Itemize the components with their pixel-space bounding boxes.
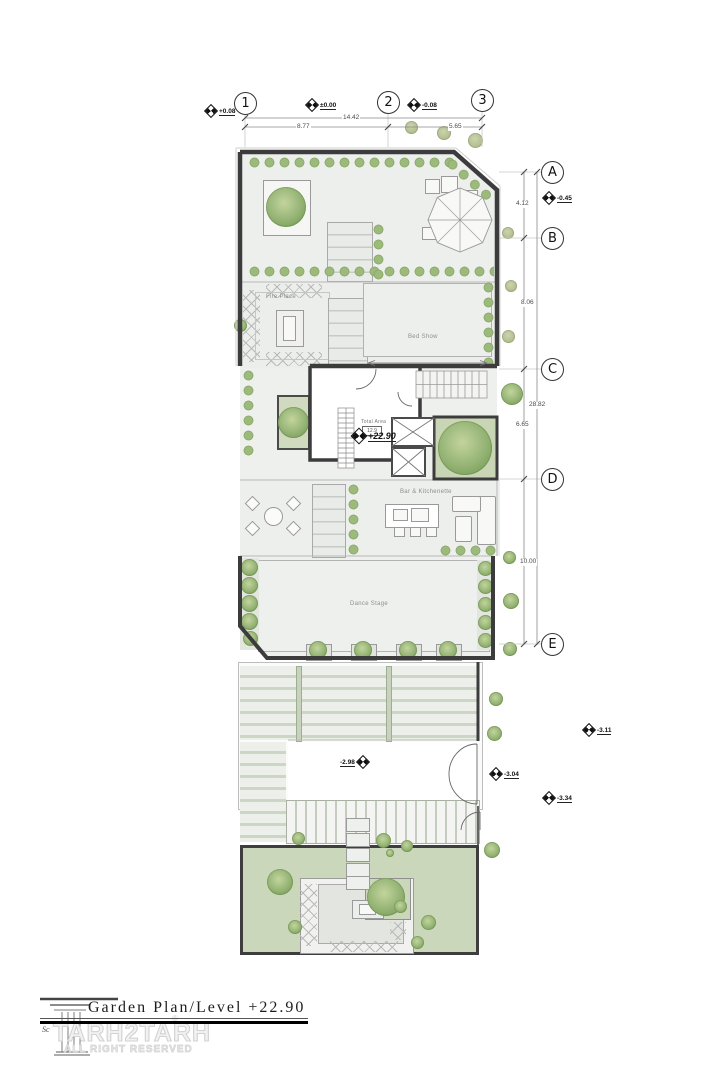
- dim-cd: 6.65: [515, 422, 530, 429]
- drawing-sheet: Fire Place Bed Show Total Area 12.9 +22.…: [0, 0, 711, 1080]
- bed-show-room: [363, 283, 492, 357]
- patio-paving-bottom: [330, 941, 398, 952]
- stool-icon: [410, 527, 421, 537]
- level-marker: -0.08: [408, 101, 437, 110]
- stool-icon: [394, 527, 405, 537]
- hedge-column-right: [481, 280, 496, 368]
- level-marker: -3.04: [490, 770, 519, 779]
- grid-bubble-E: E: [541, 633, 564, 656]
- stepping-stone: [346, 833, 370, 847]
- dim-de: 10.00: [519, 559, 537, 566]
- tree-icon: [501, 383, 523, 405]
- elevation-flag-icon: [352, 429, 366, 443]
- level-marker: ±0.00: [306, 101, 336, 110]
- stepping-stone: [346, 848, 370, 862]
- dim-top-left: 8.77: [296, 124, 311, 131]
- round-table: [264, 507, 283, 526]
- cooktop: [393, 509, 408, 521]
- elevation-flag-icon: [583, 724, 594, 735]
- tree-icon: [505, 280, 517, 292]
- pergola-slats: [299, 666, 386, 740]
- level-marker: -0.45: [543, 194, 572, 203]
- elevation-flag-icon: [543, 192, 554, 203]
- tree-icon: [267, 869, 293, 895]
- elevation-flag-icon: [490, 768, 501, 779]
- stool-icon: [426, 527, 437, 537]
- elevation-flag-icon: [408, 99, 419, 110]
- tree-icon: [266, 187, 306, 227]
- level-marker: -3.11: [583, 726, 611, 735]
- room-label-fireplace: Fire Place: [266, 294, 296, 300]
- level-marker-core: +22.90: [352, 431, 396, 442]
- dim-top-right: 5.65: [448, 124, 463, 131]
- mid-steps: [328, 298, 368, 368]
- grid-bubble-1: 1: [234, 92, 257, 115]
- shrub-icon: [354, 641, 372, 659]
- pergola-slats: [389, 666, 478, 740]
- sofa-section: [452, 496, 481, 512]
- tree-icon: [489, 692, 503, 706]
- level-marker: +0.08: [205, 107, 235, 116]
- title-rule-thick: [40, 1021, 308, 1025]
- grid-bubble-C: C: [541, 358, 564, 381]
- shrub-icon: [478, 579, 493, 594]
- hedge-row-bar-bottom: [438, 543, 498, 558]
- tree-icon: [503, 593, 519, 609]
- rights-watermark: ALL RIGHT RESERVED: [64, 1044, 193, 1055]
- shrub-icon: [478, 633, 493, 648]
- elevation-flag-icon: [205, 105, 216, 116]
- title-rule-thin: [40, 1018, 308, 1019]
- pergola-slats: [240, 742, 286, 842]
- bar-steps: [312, 484, 346, 558]
- dim-bc: 8.06: [520, 300, 535, 307]
- tree-icon: [292, 832, 305, 845]
- level-marker: -3.34: [543, 794, 572, 803]
- pergola-slats: [240, 666, 296, 740]
- shrub-icon: [243, 631, 258, 646]
- shrub-icon: [241, 577, 258, 594]
- tree-icon: [376, 833, 391, 848]
- tree-icon: [421, 915, 436, 930]
- pergola-post: [386, 666, 392, 742]
- shrub-icon: [439, 641, 457, 659]
- room-label-dance: Dance Stage: [350, 601, 388, 607]
- level-marker: -2.98: [340, 758, 369, 767]
- landing: [288, 742, 478, 804]
- grid-bubble-D: D: [541, 468, 564, 491]
- patio-chair: [425, 179, 440, 194]
- tree-icon: [405, 121, 418, 134]
- shrub-icon: [399, 641, 417, 659]
- grid-bubble-A: A: [541, 161, 564, 184]
- scale-text: Sc: [42, 1025, 50, 1034]
- stepping-stone: [346, 876, 370, 890]
- dim-top-overall: 14.42: [342, 115, 360, 122]
- patio-table: [459, 190, 478, 203]
- grid-bubble-3: 3: [471, 89, 494, 112]
- shrub-icon: [478, 597, 493, 612]
- shrub-icon: [234, 319, 247, 332]
- shrub-column: [371, 222, 386, 280]
- elevation-flag-icon: [543, 792, 554, 803]
- tree-icon: [468, 133, 483, 148]
- hedge-column-core-left: [241, 368, 256, 458]
- patio-chair: [422, 227, 437, 240]
- core-room: [310, 368, 420, 460]
- tree-icon: [487, 726, 502, 741]
- tree-icon: [503, 551, 516, 564]
- hedge-row-top: [247, 155, 454, 170]
- tree-icon: [484, 842, 500, 858]
- total-area-label: Total Area: [361, 419, 386, 425]
- shrub-icon: [241, 613, 258, 630]
- tree-icon: [438, 421, 492, 475]
- ottoman: [455, 516, 472, 542]
- shrub-icon: [241, 559, 258, 576]
- patio-paving-left: [300, 884, 317, 946]
- patio-chair: [441, 176, 458, 193]
- tree-icon: [502, 227, 514, 239]
- elevation-flag-icon: [306, 99, 317, 110]
- tree-icon: [401, 840, 413, 852]
- sheet-title: Garden Plan/Level +22.90: [88, 999, 305, 1017]
- pergola-post: [296, 666, 302, 742]
- tree-icon: [386, 849, 394, 857]
- grid-bubble-2: 2: [377, 91, 400, 114]
- shrub-column-bar: [346, 482, 361, 556]
- dim-ab: 4.12: [515, 201, 530, 208]
- shrub-icon: [309, 641, 327, 659]
- stepping-stone: [346, 863, 370, 877]
- stepping-stone: [346, 818, 370, 832]
- dim-side-overall: 28.82: [528, 402, 546, 409]
- grid-bubble-B: B: [541, 227, 564, 250]
- elevation-flag-icon: [357, 756, 368, 767]
- shrub-icon: [478, 561, 493, 576]
- shrub-icon: [241, 595, 258, 612]
- shrub-icon: [478, 615, 493, 630]
- room-label-bed-show: Bed Show: [408, 334, 438, 340]
- tree-icon: [288, 920, 302, 934]
- sink: [411, 508, 429, 522]
- patio-paving-right: [390, 922, 406, 940]
- fire-pit-inner: [283, 316, 296, 341]
- tree-icon: [394, 900, 407, 913]
- tree-icon: [278, 407, 309, 438]
- tree-icon: [502, 330, 515, 343]
- room-label-bar: Bar & Kitchenette: [400, 489, 452, 495]
- tree-icon: [411, 936, 424, 949]
- tree-icon: [503, 642, 517, 656]
